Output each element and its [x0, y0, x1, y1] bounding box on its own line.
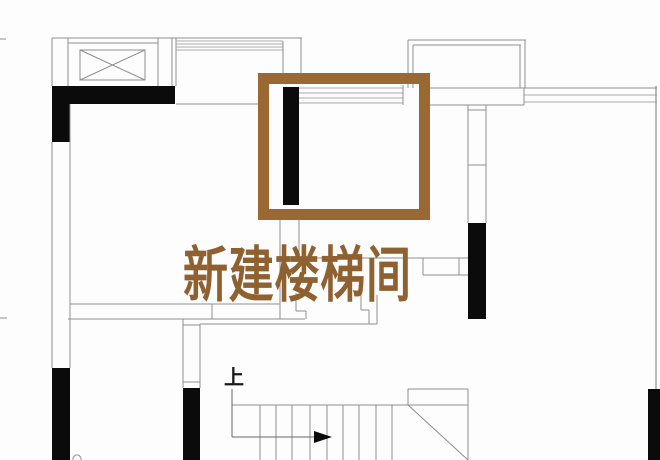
- edge-dashes: [0, 39, 7, 318]
- right-wall-band: [430, 86, 657, 389]
- wall-fill-right: [468, 223, 486, 319]
- bottom-left-wall: [52, 368, 81, 460]
- bottom-right-wall: [648, 389, 660, 460]
- stair-up-label: 上: [224, 366, 244, 389]
- arrow-head: [314, 431, 332, 443]
- annotation-text: 新建楼梯间: [183, 243, 412, 310]
- window-band-top: [176, 38, 301, 73]
- stair-side-wall: [183, 319, 200, 460]
- stair-landing: [408, 389, 468, 460]
- staircase: 上: [224, 366, 468, 460]
- annotation: 新建楼梯间: [183, 243, 412, 310]
- floor-plan-drawing: 上 新建楼梯间: [0, 0, 660, 460]
- wall-fill-stair-room: [283, 87, 299, 205]
- floor-plan: 上 新建楼梯间: [0, 0, 660, 460]
- shaft-x-symbol: [80, 50, 145, 80]
- stair-direction-arrow: [232, 389, 332, 443]
- door-symbol: [73, 455, 81, 460]
- stair-room-interior: [283, 85, 403, 205]
- right-wall-column: [468, 105, 486, 319]
- wall-fill-stair-side: [183, 388, 200, 460]
- staircase-treads: [260, 405, 392, 460]
